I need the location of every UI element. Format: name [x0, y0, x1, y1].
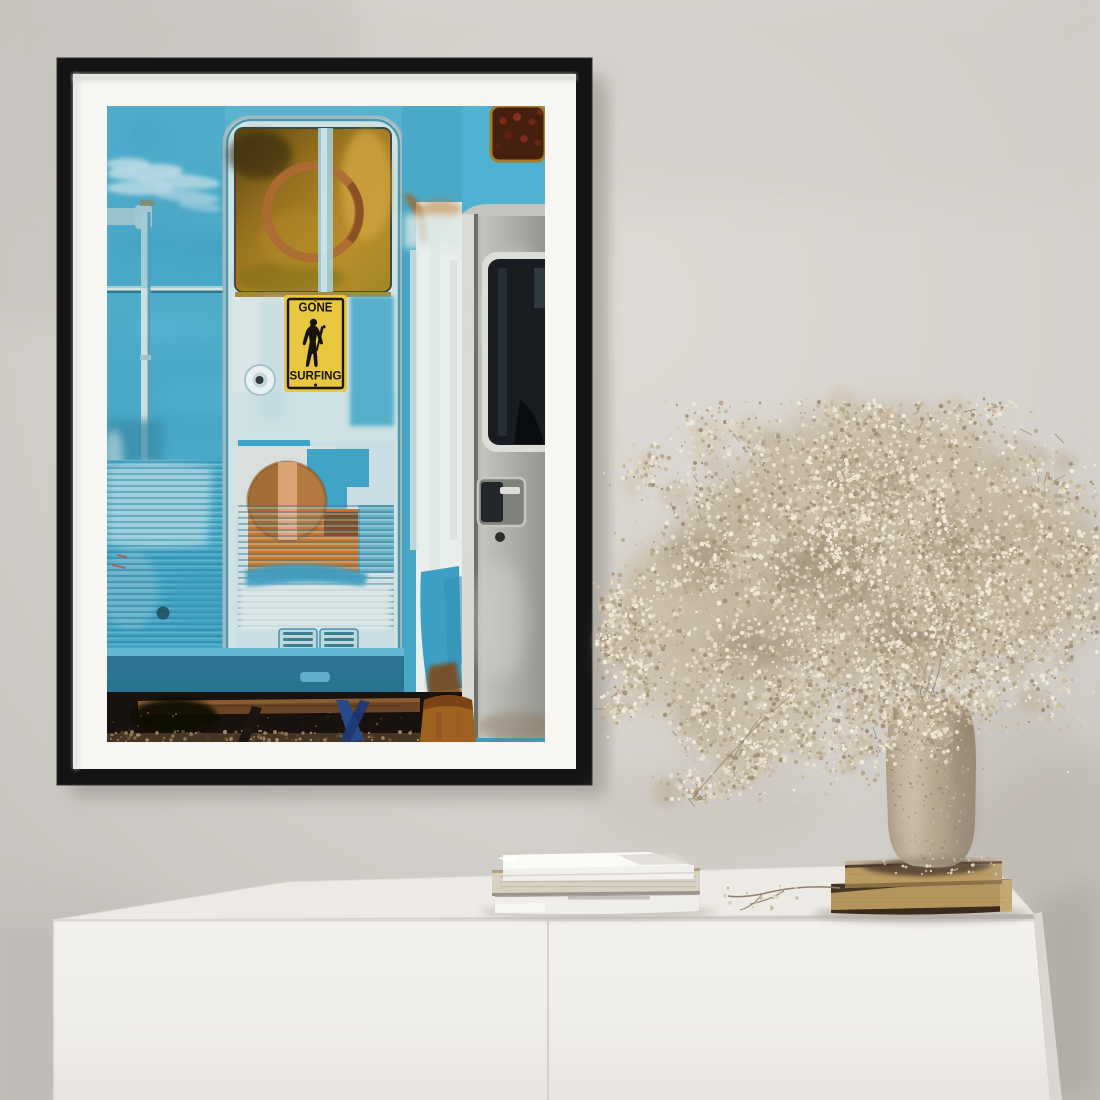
svg-text:SURFING: SURFING: [290, 371, 342, 383]
